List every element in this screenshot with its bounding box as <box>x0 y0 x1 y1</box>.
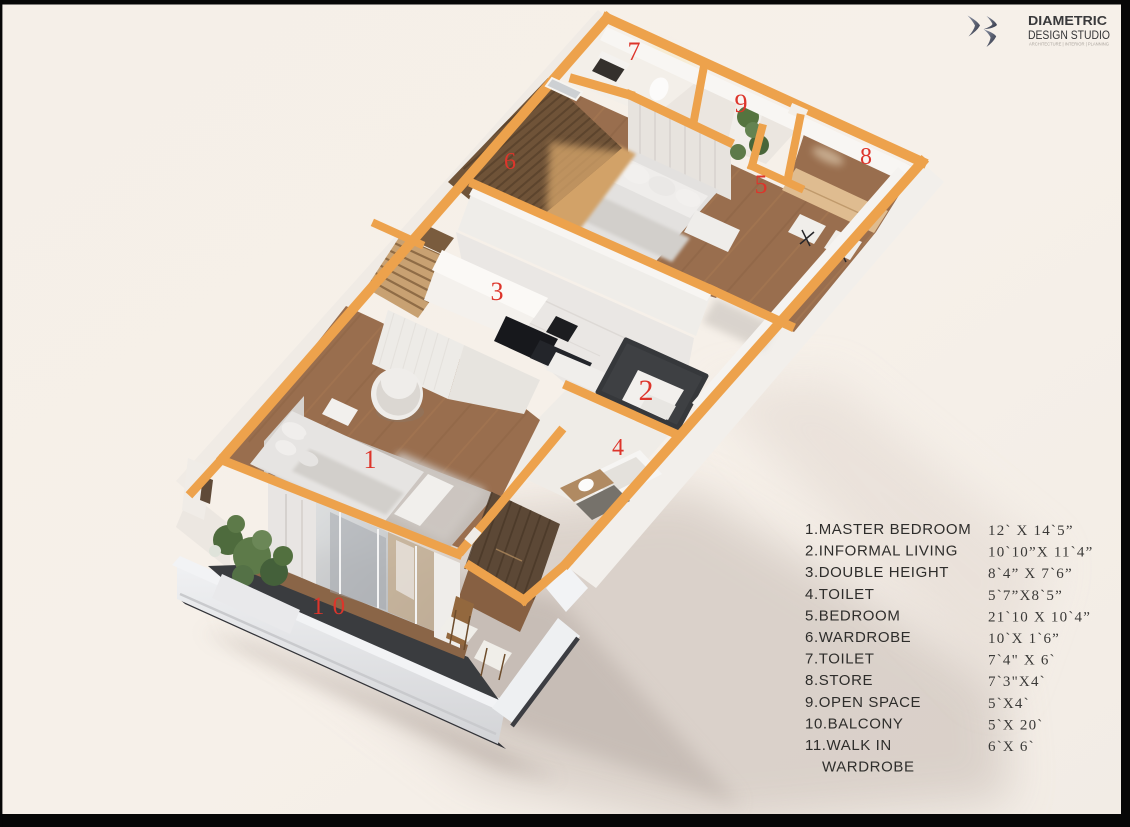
svg-text:WARDROBE: WARDROBE <box>822 759 915 776</box>
svg-text:6: 6 <box>504 149 516 175</box>
svg-text:10.BALCONY: 10.BALCONY <box>805 715 904 732</box>
svg-text:10`X 1`6”: 10`X 1`6” <box>988 631 1060 647</box>
svg-text:12` X 14`5”: 12` X 14`5” <box>988 523 1074 539</box>
svg-text:2: 2 <box>639 374 654 407</box>
svg-text:4: 4 <box>612 435 624 461</box>
svg-text:ARCHITECTURE | INTERIOR | PLAN: ARCHITECTURE | INTERIOR | PLANNING <box>1029 42 1109 47</box>
svg-text:2.INFORMAL LIVING: 2.INFORMAL LIVING <box>805 543 958 560</box>
svg-text:11.WALK IN: 11.WALK IN <box>805 737 892 754</box>
svg-text:6.WARDROBE: 6.WARDROBE <box>805 629 911 646</box>
svg-text:3: 3 <box>491 277 504 306</box>
svg-text:5`X4`: 5`X4` <box>988 696 1030 712</box>
svg-text:6`X 6`: 6`X 6` <box>988 739 1035 755</box>
svg-text:10`10”X 11`4”: 10`10”X 11`4” <box>988 545 1093 561</box>
svg-text:5.BEDROOM: 5.BEDROOM <box>805 607 900 624</box>
svg-text:4.TOILET: 4.TOILET <box>805 586 875 603</box>
svg-text:7`4" X 6`: 7`4" X 6` <box>988 653 1056 669</box>
svg-text:8: 8 <box>860 144 872 170</box>
svg-text:8`4” X 7`6”: 8`4” X 7`6” <box>988 566 1073 582</box>
svg-text:DIAMETRIC: DIAMETRIC <box>1028 13 1108 28</box>
svg-text:5`X 20`: 5`X 20` <box>988 717 1043 733</box>
svg-text:5: 5 <box>755 170 768 199</box>
svg-text:5`7”X8`5”: 5`7”X8`5” <box>988 588 1063 604</box>
svg-text:7: 7 <box>628 37 641 66</box>
svg-text:7`3"X4`: 7`3"X4` <box>988 674 1046 690</box>
svg-text:9.OPEN SPACE: 9.OPEN SPACE <box>805 694 921 711</box>
svg-text:1.MASTER BEDROOM: 1.MASTER BEDROOM <box>805 521 971 538</box>
svg-text:8.STORE: 8.STORE <box>805 672 873 689</box>
svg-text:1: 1 <box>364 445 377 474</box>
svg-text:7.TOILET: 7.TOILET <box>805 651 875 668</box>
svg-text:1 0: 1 0 <box>312 593 346 620</box>
svg-text:3.DOUBLE HEIGHT: 3.DOUBLE HEIGHT <box>805 564 949 581</box>
svg-text:DESIGN STUDIO: DESIGN STUDIO <box>1028 28 1110 42</box>
svg-text:21`10 X 10`4”: 21`10 X 10`4” <box>988 609 1091 625</box>
svg-text:9: 9 <box>735 89 748 118</box>
